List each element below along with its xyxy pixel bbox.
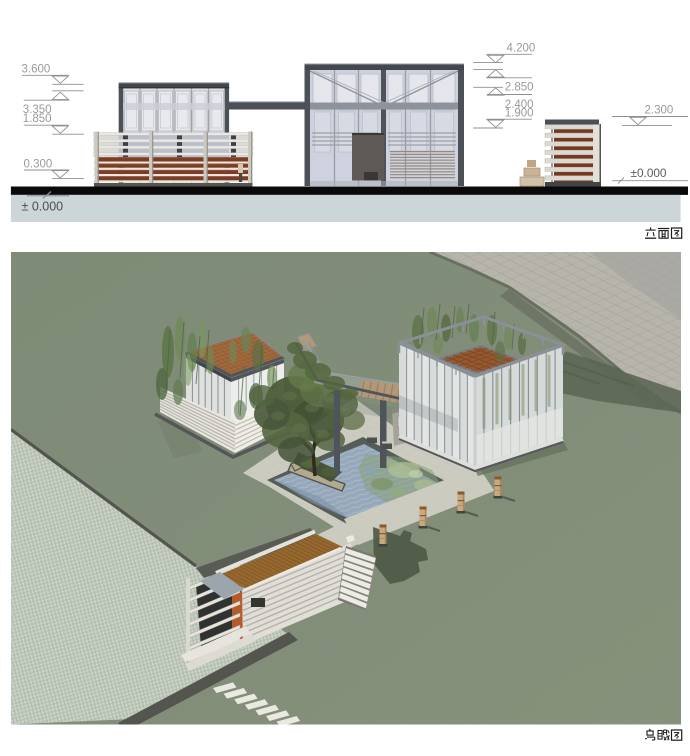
svg-text:1.850: 1.850 [23,113,52,125]
svg-text:2.850: 2.850 [505,82,534,94]
svg-text:2.300: 2.300 [645,105,674,117]
svg-text:1.900: 1.900 [505,108,534,120]
svg-text:± 0.000: ± 0.000 [22,200,64,214]
svg-text:±0.000: ±0.000 [631,166,667,180]
svg-text:4.200: 4.200 [507,43,536,55]
svg-text:3.600: 3.600 [22,64,51,76]
svg-text:0.300: 0.300 [24,158,53,170]
